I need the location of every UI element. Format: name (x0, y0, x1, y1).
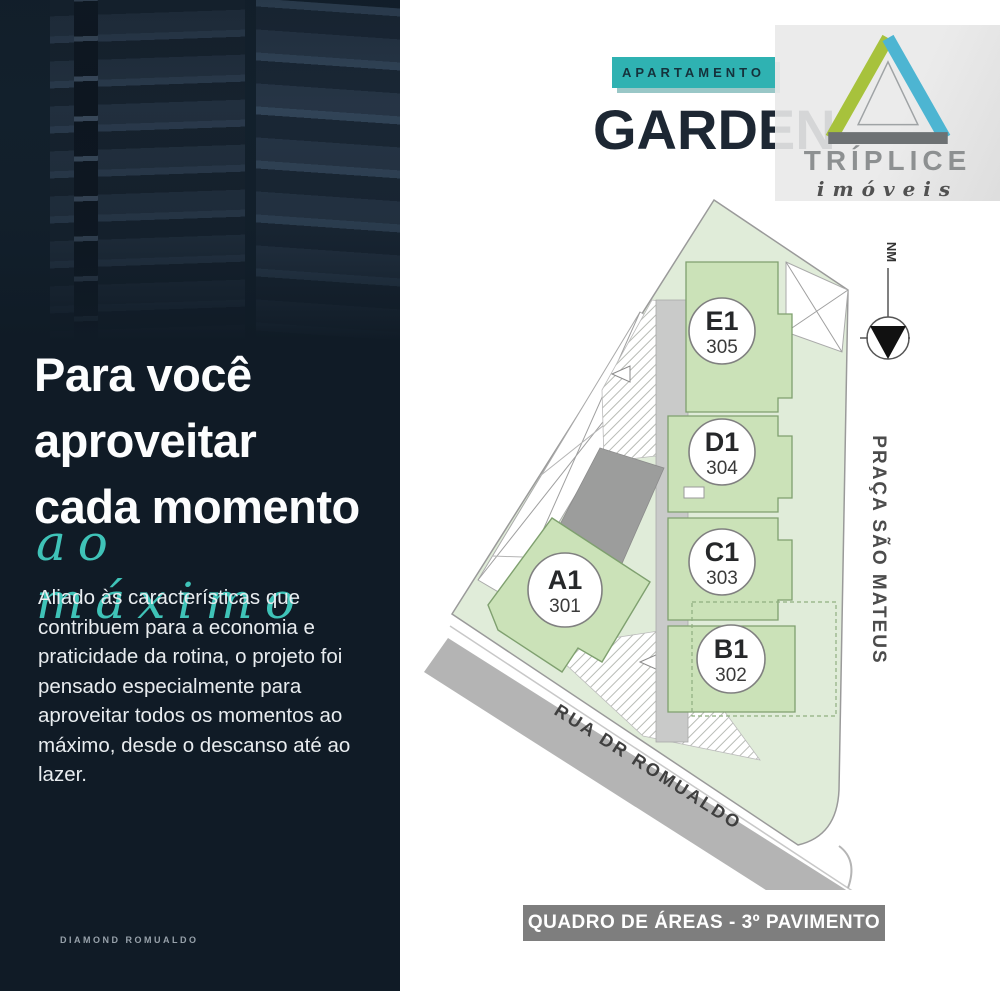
north-marker-label: NM (884, 242, 899, 262)
unit-code: C1 (705, 537, 740, 567)
headline: Para você aproveitar cada momento (34, 342, 360, 540)
unit-number: 301 (549, 596, 581, 617)
headline-line-1: Para você (34, 342, 360, 408)
unit-marker-c1: C1 303 (689, 529, 755, 595)
project-name-footer: DIAMOND ROMUALDO (60, 935, 199, 945)
square-label: PRAÇA SÃO MATEUS (868, 435, 890, 664)
unit-marker-e1: E1 305 (689, 298, 755, 364)
corner-curb (839, 846, 851, 888)
unit-code: D1 (705, 427, 740, 457)
area-table-badge: QUADRO DE ÁREAS - 3º PAVIMENTO (523, 905, 885, 941)
brand-logo: TRÍPLICE imóveis (775, 25, 1000, 201)
logo-brand-name: TRÍPLICE (775, 145, 1000, 177)
logo-tagline: imóveis (775, 177, 1000, 201)
unit-marker-b1: B1 302 (697, 625, 765, 693)
photo-fade-overlay (0, 0, 400, 352)
unit-code: E1 (705, 306, 738, 336)
unit-code: B1 (714, 634, 749, 664)
site-plan: RUA DR ROMUALDO NM PRAÇA SÃO MATEUS E1 3… (418, 190, 910, 890)
unit-code: A1 (548, 565, 583, 595)
category-badge: APARTAMENTO (612, 57, 775, 88)
unit-marker-d1: D1 304 (689, 419, 755, 485)
unit-number: 304 (706, 458, 738, 479)
unit-number: 305 (706, 337, 738, 358)
unit-number: 303 (706, 568, 738, 589)
unit-marker-a1: A1 301 (528, 553, 602, 627)
brochure-page: Para você aproveitar cada momento ao máx… (0, 0, 1000, 991)
body-paragraph: Aliado às características que contribuem… (38, 583, 374, 790)
north-marker: NM (860, 242, 910, 359)
left-dark-panel: Para você aproveitar cada momento ao máx… (0, 0, 400, 991)
service-tab (684, 487, 704, 498)
building-photo (0, 0, 400, 352)
unit-number: 302 (715, 665, 747, 686)
headline-line-2: aproveitar (34, 408, 360, 474)
triangle-logo-icon (813, 29, 963, 147)
